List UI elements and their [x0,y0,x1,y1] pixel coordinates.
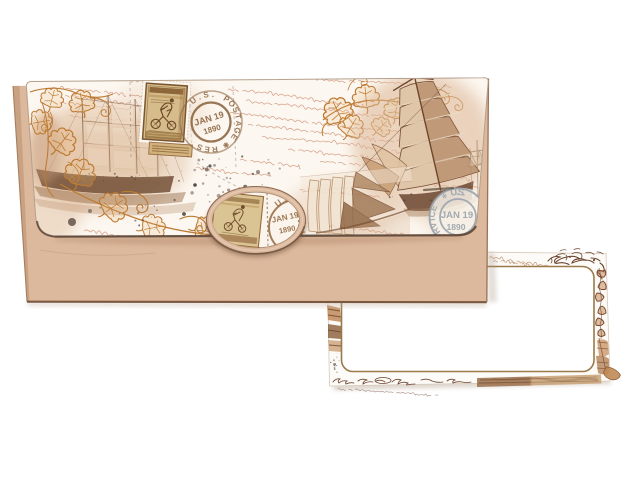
svg-text:1890: 1890 [447,222,466,232]
svg-text:JAN 19: JAN 19 [441,210,473,221]
